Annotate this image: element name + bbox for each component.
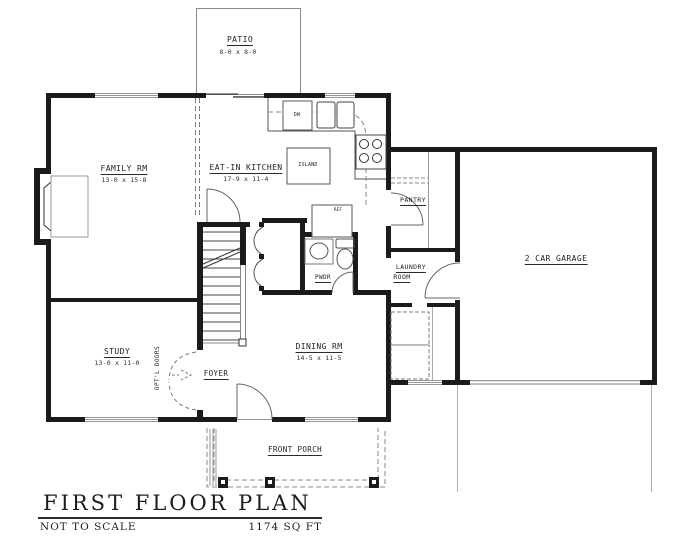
optional-doors-label: OPT'L DOORS [155,346,161,390]
powder-room-label: PWDR [315,275,331,281]
floor-plan-page: PATIO 8-0 x 8-0 FAMILY RM 13-0 x 15-8 EA… [0,0,700,540]
interior-walls [51,218,455,417]
study-dims: 13-0 x 11-0 [94,360,139,367]
laundry-label-line2: ROOM [393,274,410,281]
staircase [203,232,246,346]
ceiling-break-line [196,98,200,218]
front-porch-label: FRONT PORCH [268,446,322,454]
optional-doors-dashed [169,352,196,410]
porch [207,428,385,488]
floor-plan-drawing [0,0,700,540]
family-room-label: FAMILY RM [101,165,148,173]
kitchen-label: EAT-IN KITCHEN [209,164,282,172]
refrigerator-label: REF [334,209,342,214]
family-room-dims: 13-0 x 15-8 [101,177,146,184]
laundry-label-line1: LAUNDRY [396,264,426,271]
foyer-label: FOYER [204,370,229,378]
dining-room-label: DINING RM [296,343,343,351]
pantry-label: PANTRY [400,197,426,204]
porch-posts [218,477,379,488]
patio-dims: 8-0 x 8-0 [219,49,256,56]
kitchen-dims: 17-9 x 11-4 [223,176,268,183]
closet-doors [254,222,264,291]
dishwasher-label: DW [294,113,300,118]
bathroom-fixtures [305,239,354,269]
island-label: ISLAND [298,163,317,168]
driveway-lines [458,385,652,492]
dining-room-dims: 14-5 x 11-5 [296,355,341,362]
fireplace [34,168,88,245]
study-label: STUDY [104,348,130,356]
kitchen-fixtures [268,98,386,237]
patio-label: PATIO [227,36,253,44]
garage-label: 2 CAR GARAGE [525,255,588,263]
